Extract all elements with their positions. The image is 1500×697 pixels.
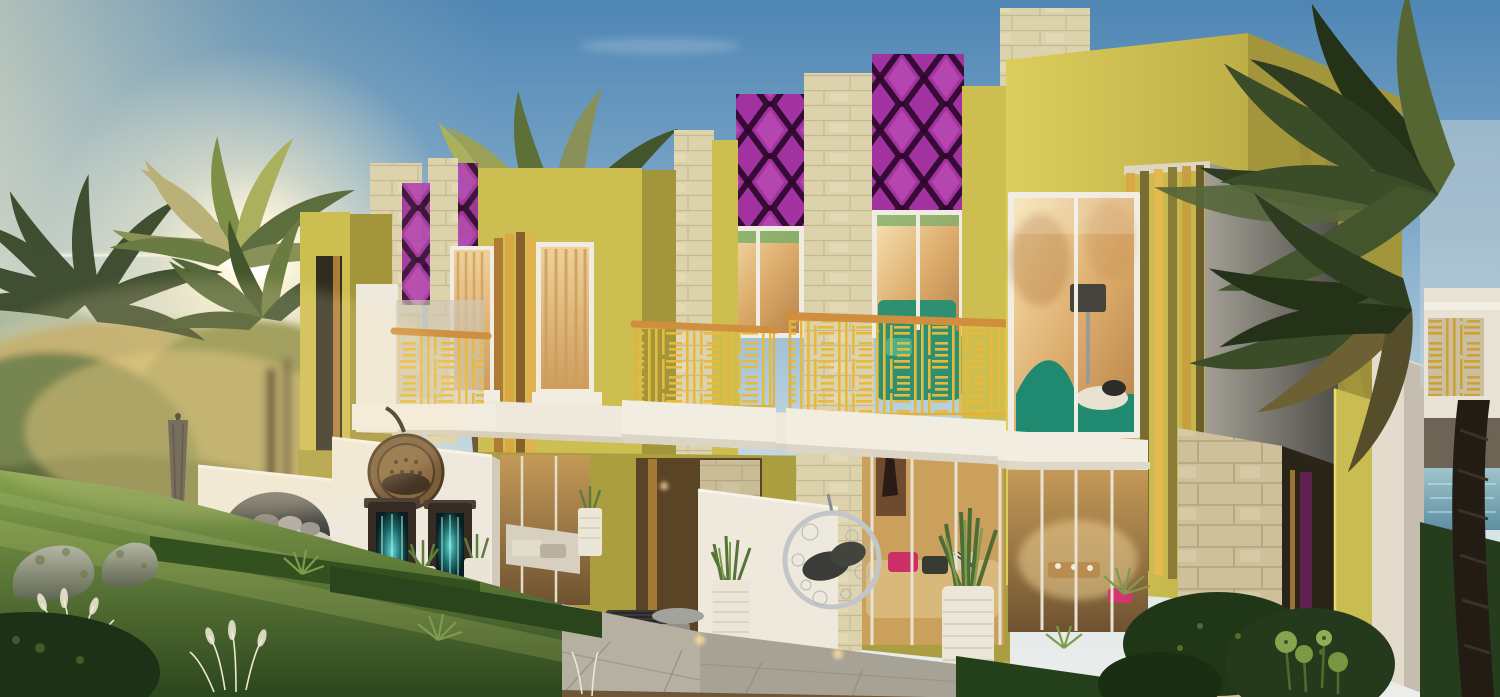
render-canvas [0,0,1500,697]
purple-entry-strip [1300,472,1312,622]
tall-planter [578,486,602,556]
gold-railing [636,328,774,406]
window [536,242,594,394]
balcony [622,324,776,450]
snake-panel [872,54,964,222]
architectural-render [0,0,1500,697]
snake-panel [736,94,804,236]
gold-curtain [648,459,657,635]
balcony [786,316,1026,466]
patio-doors [1006,462,1150,632]
snake-panel [402,183,430,305]
picture-window [1008,192,1140,438]
gold-railing [790,320,1024,414]
